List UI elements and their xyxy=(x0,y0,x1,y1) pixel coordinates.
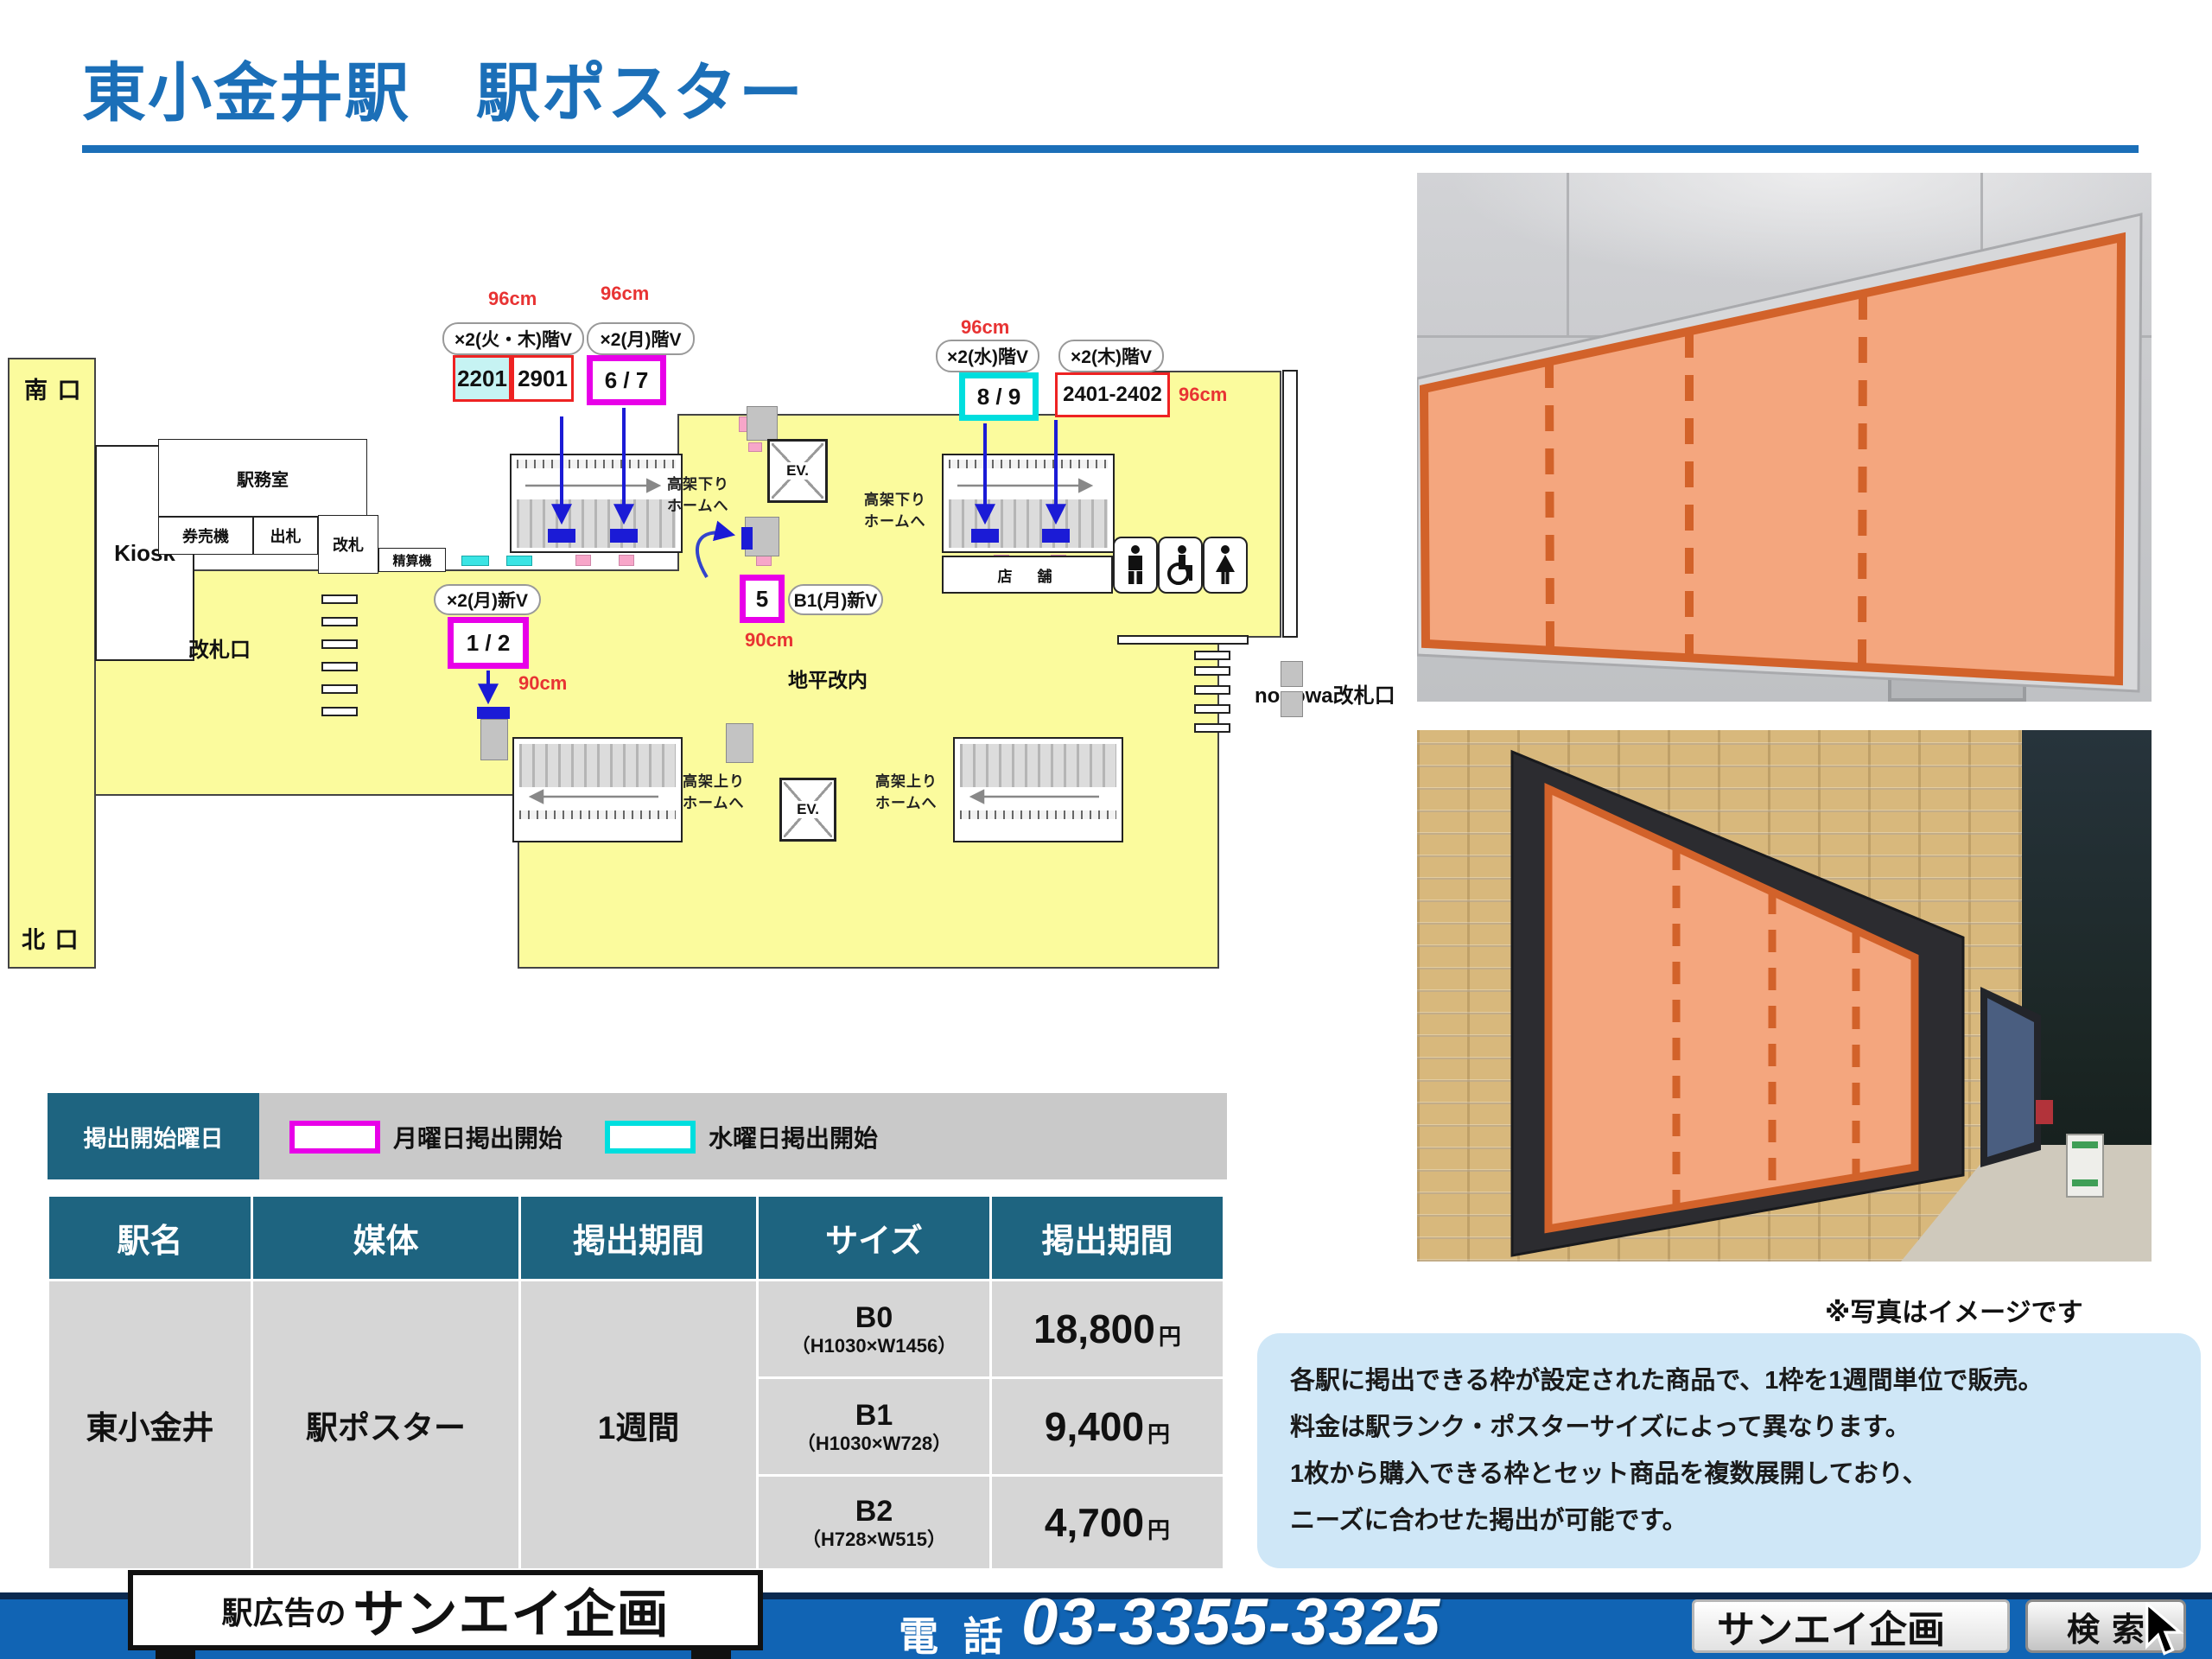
ticket-gate-bar xyxy=(321,594,358,604)
slot-marker-pink xyxy=(748,442,762,452)
info-line: 各駅に掲出できる枠が設定された商品で、1枠を1週間単位で販売。 xyxy=(1290,1357,2168,1404)
dimension-96cm: 96cm xyxy=(1179,384,1227,406)
pillar xyxy=(1281,661,1303,687)
ticket-gate-bar xyxy=(321,639,358,649)
fare-adjustment-box: 精算機 xyxy=(378,548,446,572)
direction-up-platform: 高架上り ホームへ xyxy=(683,772,745,814)
stair-treads xyxy=(519,744,676,787)
size-name: B2 xyxy=(855,1495,893,1529)
slot-marker-pink xyxy=(575,555,591,566)
media-cell: 駅ポスター xyxy=(253,1281,518,1568)
frame-tag-kaboku: ×2(火・木)階V xyxy=(442,322,584,355)
ticket-gate-bar xyxy=(321,617,358,626)
legend-wednesday-swatch xyxy=(605,1121,696,1154)
wednesday-slot-marker xyxy=(461,556,489,566)
direction-down-platform: 高架下り ホームへ xyxy=(864,490,926,532)
slot-marker-pink xyxy=(619,555,634,566)
slot-1-2: 1 / 2 xyxy=(448,617,529,669)
info-line: ニーズに合わせた掲出が可能です。 xyxy=(1290,1497,2168,1544)
table-header-price: 掲出期間 xyxy=(992,1197,1223,1279)
legend: 掲出開始曜日 月曜日掲出開始 水曜日掲出開始 xyxy=(48,1093,1227,1179)
dimension-96cm: 96cm xyxy=(488,288,537,310)
elevator-box: EV. xyxy=(779,778,836,842)
dimension-96cm: 96cm xyxy=(961,316,1009,339)
price-table: 駅名 媒体 掲出期間 サイズ 掲出期間 東小金井 駅ポスター 1週間 B0 （H… xyxy=(49,1197,1223,1568)
size-dims: （H728×W515） xyxy=(802,1529,946,1550)
size-name: B1 xyxy=(855,1399,893,1433)
size-cell-b1: B1 （H1030×W728） xyxy=(759,1379,989,1474)
price-value: 9,400 xyxy=(1045,1403,1144,1450)
escalator-hatch xyxy=(949,460,1108,468)
wall-strip xyxy=(1282,370,1298,638)
legend-wednesday-label: 水曜日掲出開始 xyxy=(709,1120,878,1154)
slot-2901: 2901 xyxy=(512,355,574,402)
floor-sign-stripe xyxy=(2072,1179,2098,1186)
gate-office-box: 改札 xyxy=(318,515,378,574)
price-unit: 円 xyxy=(1147,1513,1170,1545)
company-sign-prefix: 駅広告の xyxy=(221,1588,346,1633)
size-cell-b2: B2 （H728×W515） xyxy=(759,1477,989,1568)
table-header-station: 駅名 xyxy=(49,1197,251,1279)
size-cell-b0: B0 （H1030×W1456） xyxy=(759,1281,989,1376)
poster-slot-marker-blue xyxy=(477,707,510,719)
frame-tag-getsu-kai: ×2(月)階V xyxy=(587,322,695,355)
slot-marker-pink xyxy=(756,556,772,566)
direction-down-platform: 高架下り ホームへ xyxy=(667,474,729,517)
price-value: 18,800 xyxy=(1033,1306,1155,1352)
escalator-hatch xyxy=(519,810,676,819)
slot-pointer-curved-arrow xyxy=(697,532,729,577)
slot-8-9: 8 / 9 xyxy=(959,372,1039,421)
table-header-period: 掲出期間 xyxy=(521,1197,756,1279)
ticket-machine-box: 券売機 xyxy=(158,517,253,555)
info-line: 料金は駅ランク・ポスターサイズによって異なります。 xyxy=(1290,1404,2168,1451)
phone-number: 03-3355-3325 xyxy=(1021,1585,1440,1659)
wednesday-slot-marker xyxy=(506,556,532,566)
ticket-gate-bar xyxy=(1194,704,1230,714)
info-line: 1枚から購入できる枠とセット商品を複数展開しており、 xyxy=(1290,1451,2168,1497)
exit-counter-box: 出札 xyxy=(253,517,318,555)
mens-room-icon xyxy=(1113,537,1158,594)
ticket-gate-bar xyxy=(321,662,358,671)
shops-box: 店 舗 xyxy=(942,556,1113,594)
elevator-box: EV. xyxy=(767,439,828,503)
photo-note: ※写真はイメージです xyxy=(1825,1291,2083,1329)
legend-monday-label: 月曜日掲出開始 xyxy=(393,1120,563,1154)
table-header-size: サイズ xyxy=(759,1197,989,1279)
ticket-gate-bar xyxy=(321,684,358,694)
west-corridor-shape xyxy=(9,359,95,968)
ground-concourse-label: 地平改内 xyxy=(788,664,868,693)
direction-line: ホームへ xyxy=(683,793,745,815)
search-box: サンエイ企画 xyxy=(1692,1599,2010,1653)
phone-label: 電 話 xyxy=(899,1605,1010,1659)
womens-room-icon xyxy=(1203,537,1248,594)
mouse-cursor-icon xyxy=(2133,1602,2198,1659)
price-cell-b0: 18,800 円 xyxy=(992,1281,1223,1376)
size-name: B0 xyxy=(855,1301,893,1335)
price-unit: 円 xyxy=(1159,1319,1181,1351)
dimension-90cm: 90cm xyxy=(518,672,567,695)
company-sign: 駅広告の サンエイ企画 xyxy=(128,1570,763,1650)
legend-title: 掲出開始曜日 xyxy=(48,1093,259,1179)
dimension-90cm: 90cm xyxy=(745,629,793,652)
period-cell: 1週間 xyxy=(521,1281,756,1568)
poster-board-highlight xyxy=(1417,730,2152,1262)
photo-station-wall xyxy=(1417,173,2152,702)
price-unit: 円 xyxy=(1147,1417,1170,1449)
direction-line: ホームへ xyxy=(667,496,729,518)
company-sign-name: サンエイ企画 xyxy=(353,1573,670,1648)
station-office-box: 駅務室 xyxy=(158,439,367,517)
escalator-hatch xyxy=(960,810,1116,819)
page: 東小金井駅 駅ポスター 南 口 北 口 Kiosk 駅務室 券売機 出札 改札 … xyxy=(0,0,2212,1659)
poster-slot-marker-blue xyxy=(548,529,575,543)
legend-monday-swatch xyxy=(289,1121,380,1154)
ticket-gate-bar xyxy=(1194,666,1230,676)
south-exit-label: 南 口 xyxy=(24,372,83,405)
size-dims: （H1030×W728） xyxy=(797,1433,951,1454)
pillar xyxy=(480,719,508,760)
poster-slot-marker-blue xyxy=(610,529,638,543)
north-exit-label: 北 口 xyxy=(22,921,80,955)
table-header-media: 媒体 xyxy=(253,1197,518,1279)
panel-divider xyxy=(1862,294,1863,667)
poster-board-highlight xyxy=(1417,173,2152,702)
slot-6-7: 6 / 7 xyxy=(587,355,666,405)
photo-brick-wall xyxy=(1417,730,2152,1262)
elevator-label: EV. xyxy=(784,462,811,480)
direction-up-platform: 高架上り ホームへ xyxy=(875,772,938,814)
pillar xyxy=(726,723,753,763)
ticket-gate-bar xyxy=(1117,635,1249,645)
pillar xyxy=(747,406,778,441)
ticket-gate-bar xyxy=(1194,685,1230,695)
direction-line: ホームへ xyxy=(864,512,926,533)
price-cell-b2: 4,700 円 xyxy=(992,1477,1223,1568)
slot-2201: 2201 xyxy=(453,355,512,402)
price-cell-b1: 9,400 円 xyxy=(992,1379,1223,1474)
pillar xyxy=(1281,691,1303,717)
dimension-96cm: 96cm xyxy=(601,283,649,305)
gate-area-label: 改札口 xyxy=(188,632,251,663)
frame-tag-moku: ×2(木)階V xyxy=(1058,340,1164,372)
slot-2401-2402: 2401-2402 xyxy=(1055,372,1170,417)
elevator-label: EV. xyxy=(794,801,822,818)
poster-slot-marker-blue xyxy=(971,529,999,543)
direction-line: 高架下り xyxy=(667,474,729,496)
escalator-hatch xyxy=(517,460,676,468)
stair-treads xyxy=(960,744,1116,787)
direction-line: 高架上り xyxy=(875,772,938,793)
nonowa-gate-label: nonowa改札口 xyxy=(1255,678,1395,709)
wall-sign-red xyxy=(2036,1100,2053,1124)
slot-5: 5 xyxy=(740,575,785,623)
station-name-cell: 東小金井 xyxy=(49,1281,251,1568)
frame-tag-sui: ×2(水)階V xyxy=(936,340,1039,372)
stair-treads xyxy=(517,499,676,548)
adjacent-poster xyxy=(1987,998,2034,1157)
size-dims: （H1030×W1456） xyxy=(791,1335,957,1357)
ticket-gate-bar xyxy=(321,707,358,716)
direction-line: 高架下り xyxy=(864,490,926,512)
ticket-gate-bar xyxy=(1194,723,1230,733)
frame-tag-b1-shin: B1(月)新V xyxy=(788,584,883,615)
poster-slot-marker-blue xyxy=(1042,529,1070,543)
floor-sign-stripe xyxy=(2072,1141,2098,1148)
frame-tag-getsu-shin: ×2(月)新V xyxy=(434,584,541,615)
poster-slot-marker-blue xyxy=(741,527,753,550)
direction-line: ホームへ xyxy=(875,793,938,815)
price-value: 4,700 xyxy=(1045,1499,1144,1546)
direction-line: 高架上り xyxy=(683,772,745,793)
ticket-gate-bar xyxy=(1194,651,1230,660)
info-box: 各駅に掲出できる枠が設定された商品で、1枠を1週間単位で販売。 料金は駅ランク・… xyxy=(1257,1333,2201,1568)
wheelchair-icon xyxy=(1158,537,1203,594)
